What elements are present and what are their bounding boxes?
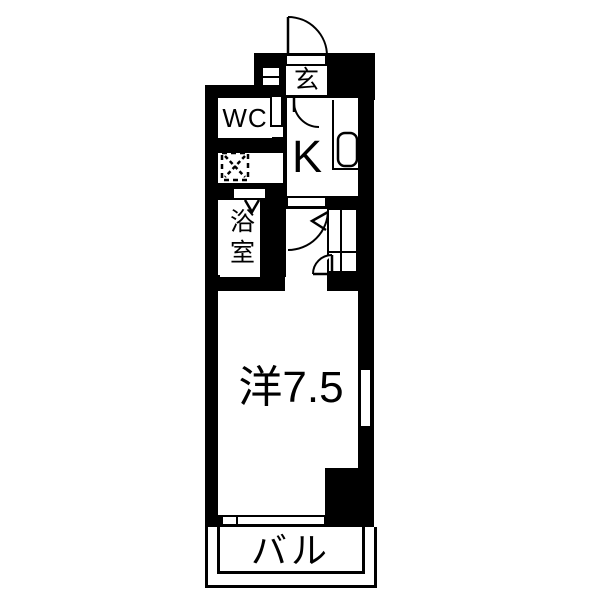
wall-below-bath [205,275,285,291]
balcony-window [221,515,326,526]
label-kitchen: K [283,130,331,182]
wall-below-wc [205,137,287,153]
bathroom-door-opening [232,187,267,200]
label-balcony: バル [220,530,362,572]
room-washer-nook [218,153,283,183]
entrance-door-arc [288,17,327,56]
wall-below-closet [327,273,360,291]
floor-plan: 玄 WC K 浴室 洋7.5 バル [0,0,600,600]
label-wc: WC [218,98,272,138]
wall-right [358,98,374,527]
room-door-opening [286,196,327,208]
label-main-room: 洋7.5 [221,362,361,414]
shoe-cabinet-icon [261,66,281,87]
label-bathroom: 浴室 [222,202,258,275]
closet-box [327,208,358,273]
label-entrance: 玄 [284,64,329,97]
wall-bottom-right-block [325,468,374,527]
wall-right-of-bath [260,200,287,277]
room-hallway [286,209,327,291]
